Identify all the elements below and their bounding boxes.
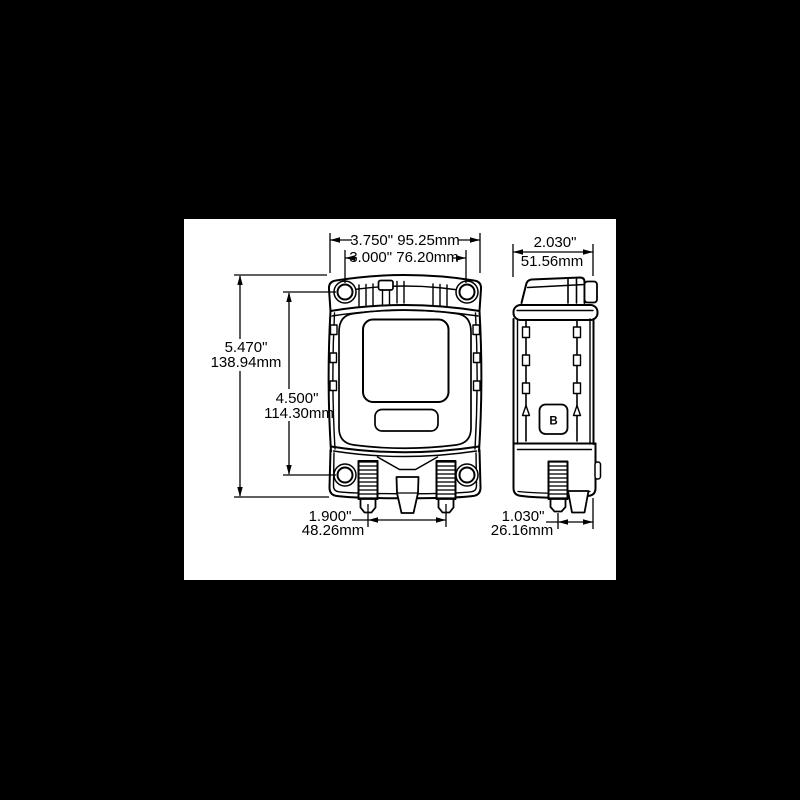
- side-bottom-tab: [568, 491, 589, 513]
- side-marking-b-label: B: [549, 416, 557, 428]
- dim-side-width-inches: 2.030": [534, 234, 577, 251]
- dim-hole-spacing-label: 3.000" 76.20mm: [349, 249, 459, 266]
- mounting-hole-bottom-right: [460, 468, 475, 483]
- dim-side-width-mm: 51.56mm: [521, 253, 584, 270]
- side-marking-b: B: [540, 405, 568, 435]
- dim-hole-spacing: 3.000" 76.20mm: [345, 249, 466, 266]
- dim-hole-vspacing-mm: 114.30mm: [264, 405, 334, 422]
- dim-side-stud-offset-mm: 26.16mm: [491, 522, 554, 539]
- mounting-hole-top-right: [460, 285, 475, 300]
- front-small-label-area: [375, 410, 438, 432]
- dim-overall-height-mm: 138.94mm: [211, 354, 282, 371]
- side-flange-bump: [595, 462, 601, 479]
- terminal-stud-side: [549, 462, 568, 512]
- dim-overall-width-label: 3.750" 95.25mm: [350, 232, 460, 249]
- mounting-hole-top-left: [338, 285, 353, 300]
- front-label-area: [363, 320, 449, 403]
- dimension-drawing: B: [0, 0, 800, 800]
- dim-overall-width: 3.750" 95.25mm: [330, 232, 480, 249]
- bottom-center-tab: [397, 477, 419, 513]
- dim-stud-spacing-mm: 48.26mm: [302, 522, 365, 539]
- top-center-tab: [379, 281, 394, 291]
- side-top-band: [514, 305, 598, 320]
- side-cap-tab: [585, 282, 598, 303]
- mounting-hole-bottom-left: [338, 468, 353, 483]
